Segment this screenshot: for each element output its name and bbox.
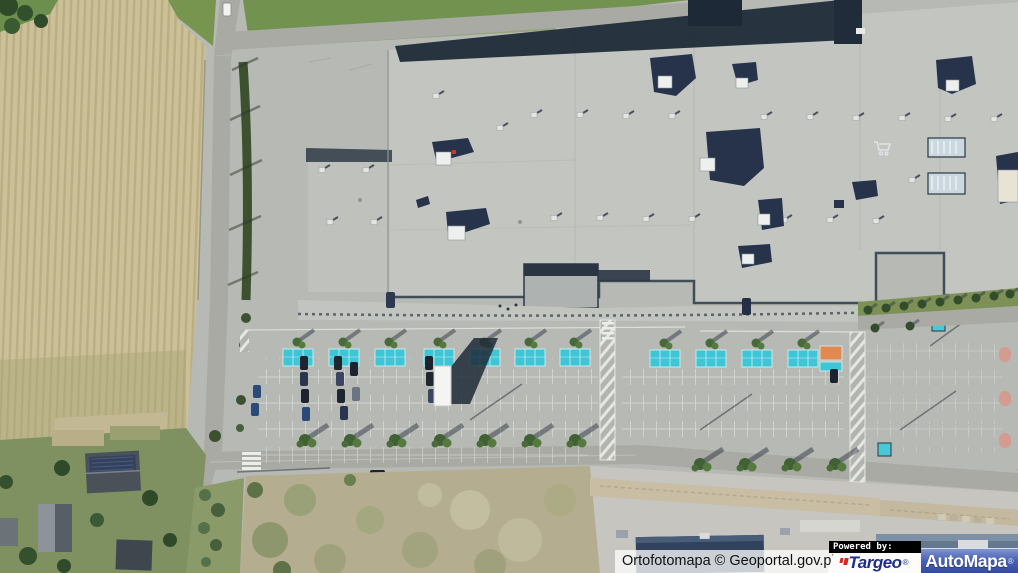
map-viewport[interactable]: Ortofotomapa © Geoportal.gov.pl Powered …: [0, 0, 1018, 573]
orange-parking-spot: [820, 346, 842, 360]
targeo-mark-icon: [840, 558, 848, 569]
map-attribution: Ortofotomapa © Geoportal.gov.pl: [615, 550, 842, 573]
powered-by-label: Powered by:: [829, 541, 921, 553]
scrub-land: [240, 466, 600, 573]
automapa-logo-text: AutoMapa: [925, 551, 1006, 572]
targeo-registered-mark: ®: [903, 558, 909, 568]
targeo-logo-text: Targeo: [849, 553, 902, 573]
aerial-orthophoto-canvas: [0, 0, 1018, 573]
targeo-logo[interactable]: Targeo®: [827, 553, 921, 573]
automapa-registered-mark: ®: [1008, 557, 1014, 566]
farm-field: [0, 0, 206, 462]
white-car: [223, 3, 231, 16]
automapa-logo[interactable]: AutoMapa®: [921, 548, 1018, 573]
